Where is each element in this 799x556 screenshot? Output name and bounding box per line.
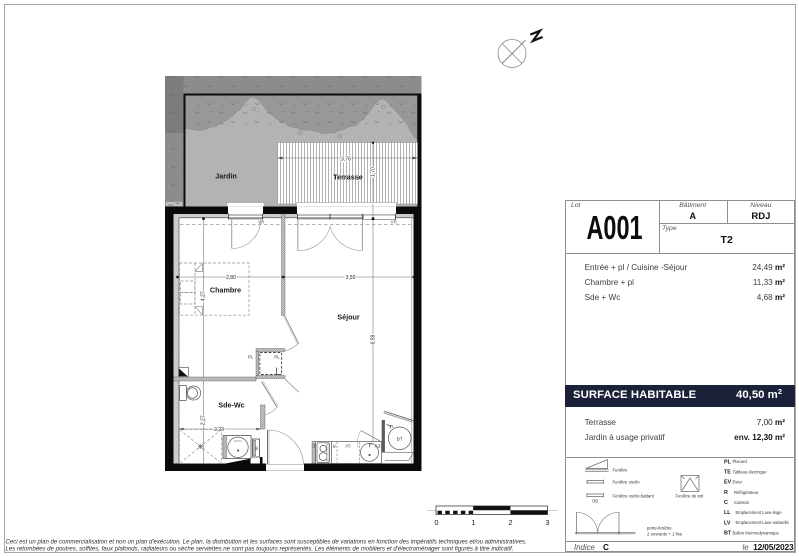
svg-text:6,59: 6,59 [371, 335, 377, 345]
svg-text:Emplacement Lave-linge: Emplacement Lave-linge [736, 510, 783, 515]
svg-text:LV: LV [724, 520, 731, 526]
svg-text:Ballon thermodynamique: Ballon thermodynamique [733, 530, 780, 535]
svg-text:OB: OB [592, 499, 598, 504]
svg-text:Jardin: Jardin [215, 172, 237, 181]
svg-text:BT: BT [724, 531, 732, 537]
svg-text:C: C [724, 500, 728, 506]
svg-text:Fenêtre oscilo: Fenêtre oscilo [613, 480, 641, 485]
svg-text:0: 0 [434, 518, 438, 527]
svg-text:R: R [332, 443, 335, 448]
svg-text:Ceci est un plan de commercial: Ceci est un plan de commercialisation et… [6, 539, 527, 545]
svg-text:C: C [312, 444, 315, 449]
svg-text:2 ouvrants + 1 fixe: 2 ouvrants + 1 fixe [647, 532, 683, 537]
svg-text:Placard: Placard [733, 459, 748, 464]
svg-text:2,23: 2,23 [214, 427, 224, 433]
svg-text:Fenêtre de toit: Fenêtre de toit [676, 494, 705, 499]
svg-text:2,80: 2,80 [226, 275, 236, 281]
svg-text:Réfrigérateur: Réfrigérateur [734, 490, 759, 495]
svg-text:VR: VR [258, 220, 265, 225]
svg-text:1: 1 [471, 518, 475, 527]
svg-text:Cuisson: Cuisson [734, 500, 750, 505]
svg-text:4,27: 4,27 [201, 291, 207, 301]
svg-text:Fenêtre: Fenêtre [613, 468, 628, 473]
svg-text:EV: EV [724, 480, 732, 486]
svg-text:TE: TE [724, 470, 731, 476]
svg-text:BT: BT [397, 436, 403, 441]
svg-text:Chambre: Chambre [210, 286, 241, 295]
svg-text:Tableau électrique: Tableau électrique [733, 469, 768, 474]
svg-text:PL: PL [274, 355, 280, 360]
svg-text:PL: PL [248, 355, 254, 360]
svg-text:Sde-Wc: Sde-Wc [218, 401, 244, 410]
svg-text:VR: VR [391, 220, 398, 225]
svg-text:R: R [724, 490, 728, 496]
svg-text:3: 3 [545, 518, 549, 527]
svg-text:Evier: Evier [733, 480, 743, 485]
svg-text:3,76: 3,76 [341, 156, 351, 162]
svg-text:Les retombées de poutres, soff: Les retombées de poutres, soffites, faux… [6, 547, 514, 553]
svg-text:EV: EV [375, 443, 381, 448]
svg-text:3,50: 3,50 [346, 275, 356, 281]
svg-text:Emplacement Lave-vaisselle: Emplacement Lave-vaisselle [736, 520, 790, 525]
svg-text:Fenêtre oscilo battant: Fenêtre oscilo battant [613, 494, 655, 499]
svg-text:porte-fenêtre: porte-fenêtre [647, 526, 672, 531]
svg-text:LL: LL [724, 510, 731, 516]
svg-text:2,27: 2,27 [201, 415, 207, 425]
svg-text:1,70: 1,70 [371, 167, 377, 177]
svg-text:2: 2 [508, 518, 512, 527]
svg-text:LV: LV [345, 443, 350, 448]
svg-text:TE: TE [255, 446, 259, 451]
svg-text:PL: PL [724, 459, 732, 465]
svg-text:Séjour: Séjour [337, 313, 360, 322]
svg-text:Terrasse: Terrasse [333, 173, 362, 182]
